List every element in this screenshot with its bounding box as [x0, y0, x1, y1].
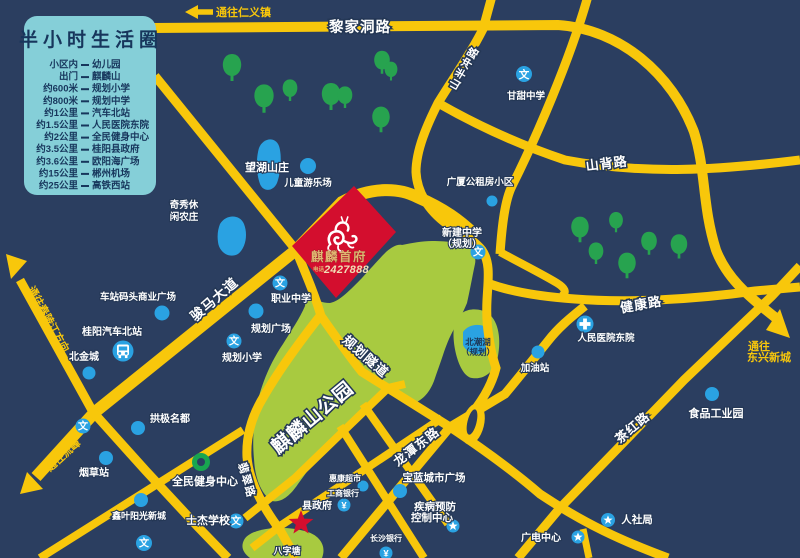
svg-text:约25公里: 约25公里	[39, 180, 79, 192]
svg-text:士杰学校: 士杰学校	[186, 513, 231, 527]
svg-text:宝蓝城市广场: 宝蓝城市广场	[403, 471, 466, 484]
svg-text:约15公里: 约15公里	[39, 167, 79, 179]
svg-text:规划广场: 规划广场	[251, 322, 291, 335]
svg-text:文: 文	[518, 68, 530, 81]
svg-text:汽车北站: 汽车北站	[92, 107, 131, 119]
svg-text:奇秀休: 奇秀休	[170, 199, 199, 211]
svg-text:新建中学: 新建中学	[442, 226, 482, 239]
svg-text:桂阳县政府: 桂阳县政府	[91, 143, 140, 155]
svg-text:约800米: 约800米	[43, 95, 78, 107]
svg-text:黎家洞路: 黎家洞路	[329, 18, 391, 36]
svg-text:桂阳汽车北站: 桂阳汽车北站	[81, 325, 142, 338]
svg-text:约600米: 约600米	[43, 83, 78, 95]
svg-text:全民健身中心: 全民健身中心	[91, 131, 150, 143]
svg-text:职业中学: 职业中学	[271, 292, 311, 305]
svg-text:半小时生活圈: 半小时生活圈	[19, 28, 163, 51]
svg-text:惠康超市: 惠康超市	[329, 473, 361, 483]
svg-text:麒麟山: 麒麟山	[92, 71, 121, 83]
svg-text:约2公里: 约2公里	[44, 131, 78, 143]
svg-text:东兴新城: 东兴新城	[747, 350, 791, 364]
svg-text:约1.5公里: 约1.5公里	[36, 119, 78, 131]
svg-text:麒麟首府: 麒麟首府	[311, 249, 367, 264]
svg-text:八字塘: 八字塘	[272, 545, 300, 556]
svg-text:通往: 通往	[748, 339, 770, 353]
svg-text:北金城: 北金城	[69, 350, 99, 363]
svg-text:烟草站: 烟草站	[79, 466, 109, 479]
svg-text:文: 文	[275, 277, 286, 290]
svg-text:食品工业园: 食品工业园	[689, 406, 744, 420]
svg-text:（规划）: （规划）	[461, 347, 495, 357]
svg-text:人民医院东院: 人民医院东院	[577, 332, 635, 344]
svg-text:车站码头商业广场: 车站码头商业广场	[100, 291, 177, 303]
svg-text:北潮湖: 北潮湖	[465, 337, 491, 347]
svg-text:（规划）: （规划）	[442, 237, 482, 250]
svg-text:郴州机场: 郴州机场	[92, 167, 131, 179]
svg-text:儿童游乐场: 儿童游乐场	[283, 177, 332, 189]
svg-text:约3.6公里: 约3.6公里	[36, 155, 78, 167]
svg-text:拱极名都: 拱极名都	[150, 412, 190, 425]
svg-text:鑫叶阳光新城: 鑫叶阳光新城	[111, 510, 166, 521]
svg-text:规划中学: 规划中学	[92, 95, 131, 107]
svg-text:工商银行: 工商银行	[327, 488, 359, 498]
svg-text:长沙银行: 长沙银行	[370, 533, 402, 543]
svg-text:控制中心: 控制中心	[411, 511, 453, 524]
svg-text:约1公里: 约1公里	[44, 107, 78, 119]
svg-text:电话: 电话	[313, 265, 325, 273]
svg-text:规划小学: 规划小学	[222, 351, 262, 364]
svg-text:全民健身中心: 全民健身中心	[171, 474, 238, 488]
svg-text:¥: ¥	[341, 500, 347, 511]
svg-text:望湖山庄: 望湖山庄	[245, 160, 289, 174]
svg-text:¥: ¥	[383, 548, 389, 558]
svg-text:通往仁义镇: 通往仁义镇	[216, 5, 271, 19]
svg-text:县政府: 县政府	[302, 499, 332, 512]
svg-text:人社局: 人社局	[621, 513, 653, 526]
svg-text:小区内: 小区内	[48, 59, 78, 71]
svg-text:高铁西站: 高铁西站	[92, 180, 131, 192]
svg-text:广厦公租房小区: 广厦公租房小区	[447, 176, 514, 188]
svg-text:加油站: 加油站	[520, 362, 550, 374]
svg-text:规划小学: 规划小学	[92, 83, 131, 95]
svg-text:闲农庄: 闲农庄	[170, 211, 199, 223]
svg-text:甘甜中学: 甘甜中学	[507, 90, 546, 102]
svg-text:幼儿园: 幼儿园	[92, 59, 121, 71]
svg-text:文: 文	[139, 537, 150, 550]
svg-text:文: 文	[231, 515, 242, 528]
svg-text:人民医院东院: 人民医院东院	[92, 119, 150, 131]
svg-text:约3.5公里: 约3.5公里	[36, 143, 78, 155]
svg-text:文: 文	[78, 420, 89, 433]
svg-text:欧阳海广场: 欧阳海广场	[92, 155, 140, 167]
svg-text:文: 文	[229, 335, 240, 348]
svg-text:广电中心: 广电中心	[521, 531, 561, 544]
svg-text:出门: 出门	[59, 71, 78, 83]
svg-text:2427888: 2427888	[323, 264, 370, 276]
